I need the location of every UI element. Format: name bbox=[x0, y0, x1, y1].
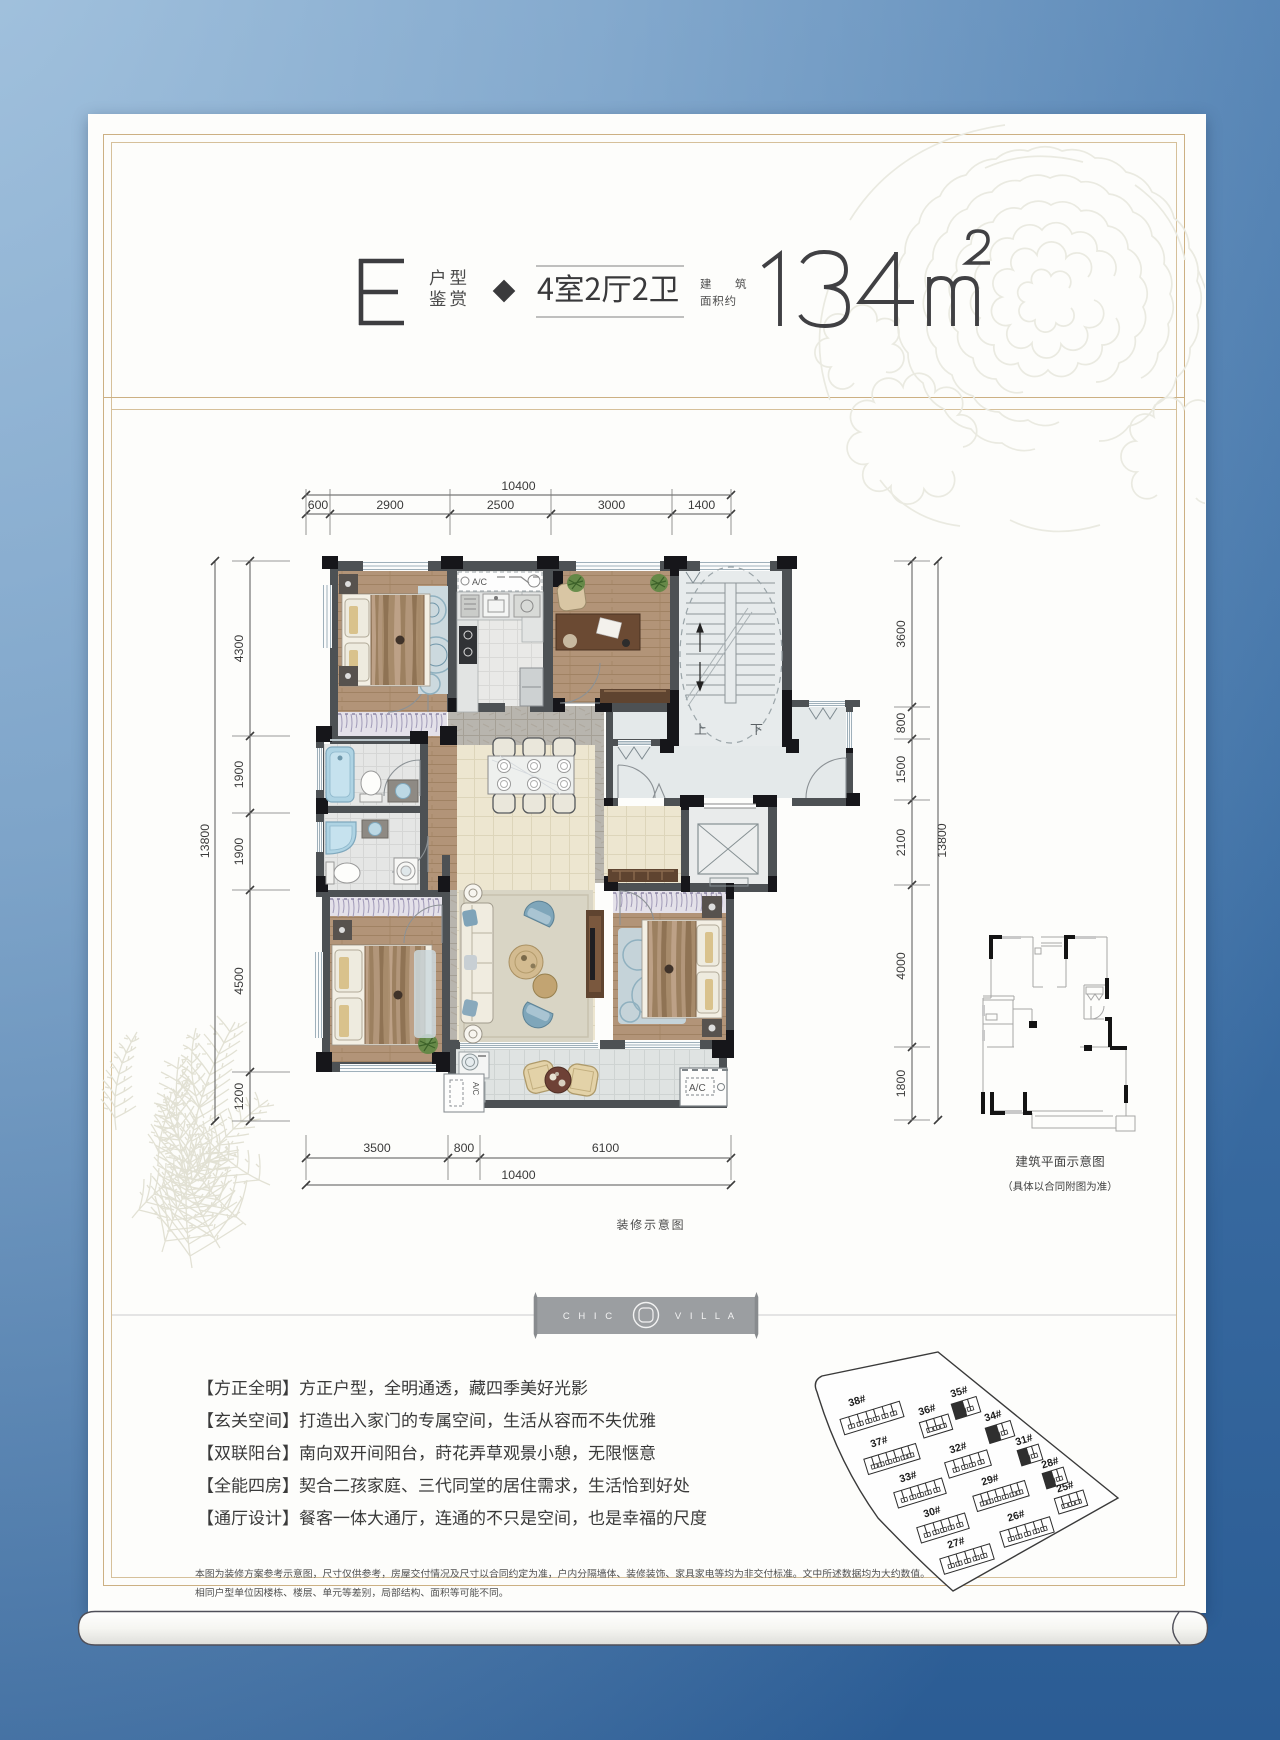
svg-text:1800: 1800 bbox=[894, 1070, 908, 1098]
svg-text:4500: 4500 bbox=[232, 967, 246, 995]
svg-text:13800: 13800 bbox=[198, 824, 212, 858]
svg-text:800: 800 bbox=[454, 1141, 475, 1155]
svg-text:10400: 10400 bbox=[501, 1168, 535, 1182]
svg-text:A/C: A/C bbox=[472, 577, 488, 587]
svg-text:1500: 1500 bbox=[894, 756, 908, 784]
svg-text:2900: 2900 bbox=[376, 498, 404, 512]
svg-text:13800: 13800 bbox=[935, 823, 949, 857]
svg-text:A/C: A/C bbox=[471, 1082, 480, 1096]
svg-text:1400: 1400 bbox=[688, 498, 716, 512]
svg-text:1900: 1900 bbox=[232, 838, 246, 866]
svg-text:1200: 1200 bbox=[232, 1083, 246, 1111]
svg-text:4300: 4300 bbox=[232, 635, 246, 663]
svg-text:4000: 4000 bbox=[894, 952, 908, 980]
svg-text:2500: 2500 bbox=[487, 498, 515, 512]
svg-text:800: 800 bbox=[894, 713, 908, 734]
svg-text:3500: 3500 bbox=[363, 1141, 391, 1155]
svg-text:2100: 2100 bbox=[894, 829, 908, 857]
svg-text:3000: 3000 bbox=[598, 498, 626, 512]
svg-text:1900: 1900 bbox=[232, 761, 246, 789]
svg-text:6100: 6100 bbox=[592, 1141, 620, 1155]
svg-text:3600: 3600 bbox=[894, 620, 908, 648]
svg-text:V I L L A: V I L L A bbox=[675, 1311, 737, 1322]
svg-text:10400: 10400 bbox=[501, 479, 535, 493]
svg-text:A/C: A/C bbox=[689, 1083, 706, 1094]
svg-text:600: 600 bbox=[308, 498, 329, 512]
svg-text:C H I C: C H I C bbox=[563, 1311, 615, 1322]
